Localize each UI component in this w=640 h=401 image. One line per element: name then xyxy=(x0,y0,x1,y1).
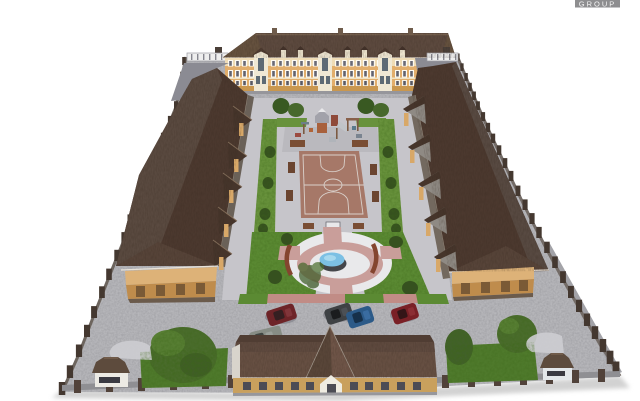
svg-text:GROUP: GROUP xyxy=(579,0,617,9)
